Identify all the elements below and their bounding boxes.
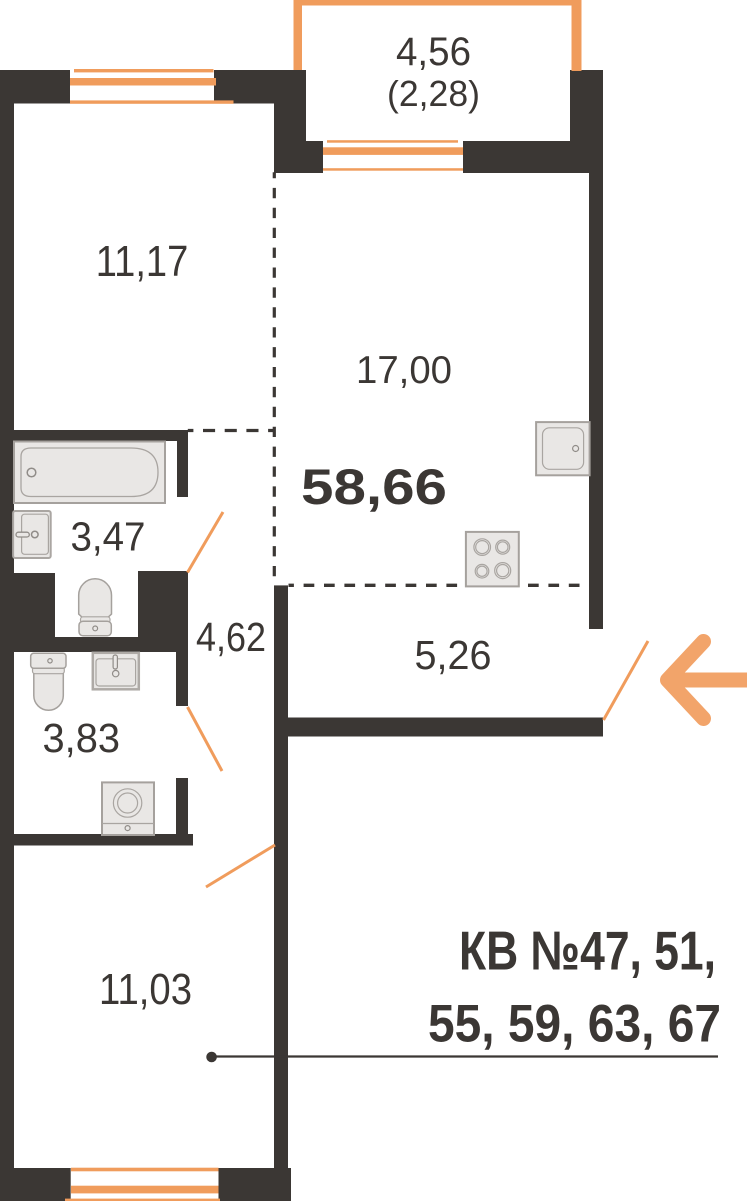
svg-text:58,66: 58,66: [301, 459, 447, 515]
svg-text:11,17: 11,17: [96, 238, 189, 286]
svg-text:17,00: 17,00: [356, 349, 452, 392]
svg-text:(2,28): (2,28): [387, 73, 480, 114]
svg-text:3,47: 3,47: [71, 514, 146, 560]
svg-text:5,26: 5,26: [415, 632, 492, 678]
svg-text:55, 59, 63, 67: 55, 59, 63, 67: [428, 995, 721, 1054]
svg-text:КВ №47, 51,: КВ №47, 51,: [459, 920, 716, 982]
svg-text:4,56: 4,56: [396, 30, 471, 74]
svg-text:11,03: 11,03: [99, 966, 192, 1014]
svg-text:3,83: 3,83: [43, 715, 121, 761]
svg-text:4,62: 4,62: [196, 614, 266, 660]
